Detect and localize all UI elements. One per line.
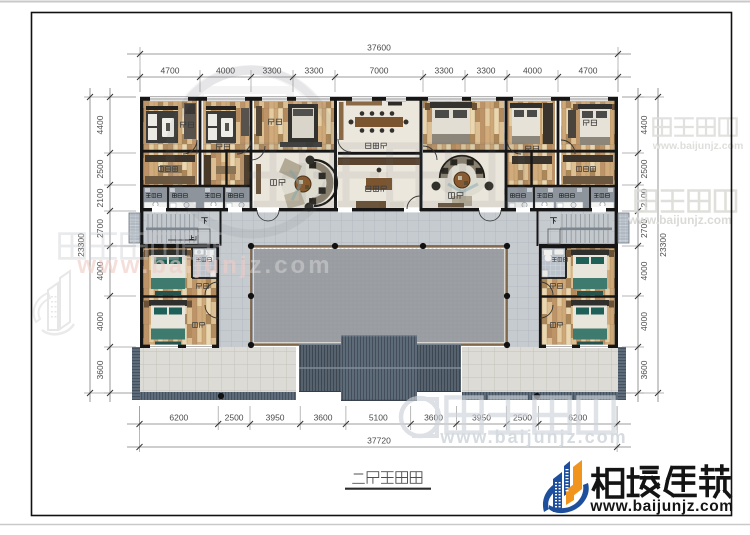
svg-text:23300: 23300 [658,233,668,257]
svg-text:www.baijunjz.com: www.baijunjz.com [439,427,627,447]
svg-text:www.baijunjz.com: www.baijunjz.com [589,498,733,515]
svg-text:37720: 37720 [367,436,391,446]
svg-text:4700: 4700 [161,66,180,76]
svg-text:3300: 3300 [477,66,496,76]
svg-text:3300: 3300 [435,66,454,76]
svg-text:4000: 4000 [639,261,649,280]
svg-text:4000: 4000 [639,312,649,331]
svg-text:4400: 4400 [95,115,105,134]
svg-text:2500: 2500 [225,413,244,423]
svg-text:3600: 3600 [314,413,333,423]
svg-text:6200: 6200 [169,413,188,423]
svg-text:4400: 4400 [639,115,649,134]
svg-text:5100: 5100 [369,413,388,423]
svg-text:www.baijunjz.com: www.baijunjz.com [652,140,744,152]
svg-text:2100: 2100 [95,188,105,207]
svg-text:www.baijunjz.com: www.baijunjz.com [627,213,732,227]
svg-text:3300: 3300 [305,66,324,76]
svg-text:3600: 3600 [639,360,649,379]
svg-text:2500: 2500 [95,159,105,178]
svg-text:3600: 3600 [95,360,105,379]
svg-text:4000: 4000 [523,66,542,76]
svg-text:2500: 2500 [639,159,649,178]
svg-text:4700: 4700 [579,66,598,76]
svg-text:4000: 4000 [95,312,105,331]
svg-text:3950: 3950 [266,413,285,423]
svg-text:7000: 7000 [370,66,389,76]
svg-text:37600: 37600 [367,43,391,53]
